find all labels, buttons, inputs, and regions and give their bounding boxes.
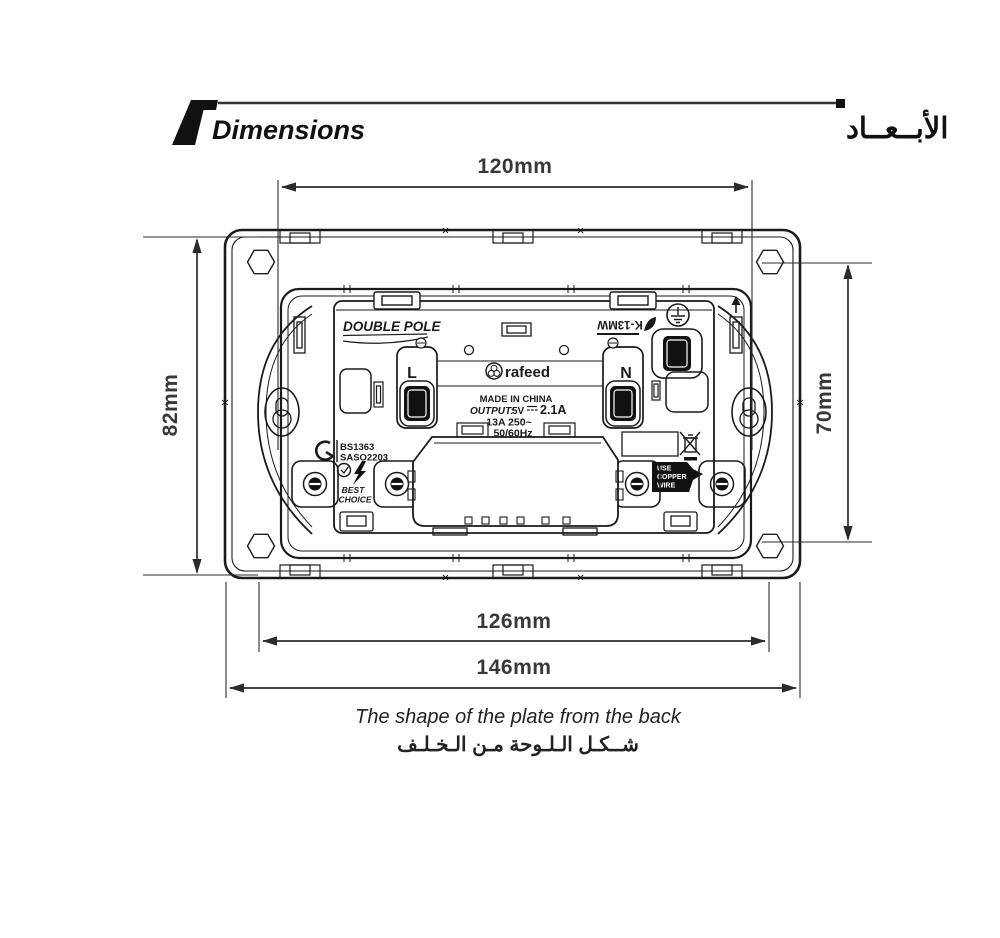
best-choice-badge: BEST CHOICE	[338, 461, 372, 505]
double-pole-text: DOUBLE POLE	[343, 319, 442, 334]
page-title-ar: الأبــعــاد	[846, 110, 948, 145]
fixing-hole-left	[465, 346, 474, 355]
caption-en: The shape of the plate from the back	[355, 706, 682, 728]
brand-logo: rafeed	[486, 363, 550, 381]
model-stamp: K-13MW	[597, 317, 656, 334]
dim-label-146mm: 146mm	[477, 656, 552, 679]
standards-block: BS1363 SASO2203	[316, 440, 388, 464]
captions: The shape of the plate from the back شــ…	[355, 706, 682, 757]
dimension-drawing: Dimensions الأبــعــاد	[0, 0, 1000, 938]
blank-label	[622, 432, 678, 456]
dim-label-126mm: 126mm	[477, 610, 552, 633]
standard-bs: BS1363	[340, 442, 374, 453]
brand-text: rafeed	[505, 364, 550, 381]
output-amps: 2.1A	[540, 403, 566, 417]
dim-label-70mm: 70mm	[813, 372, 836, 435]
live-terminal: L	[397, 338, 437, 428]
hex-boss-bottom-right	[757, 534, 784, 557]
quality-mark-icon	[316, 442, 332, 460]
hex-boss-top-right	[757, 250, 784, 273]
neutral-label: N	[620, 365, 632, 382]
hex-boss-top-left	[248, 250, 275, 273]
output-volts: 5V	[512, 406, 525, 417]
caption-ar: شــكـل الـلـوحة مـن الـخـلـف	[397, 734, 639, 757]
center-slot	[502, 323, 531, 336]
weee-bin-icon	[680, 432, 700, 461]
dim-label-120mm: 120mm	[478, 155, 553, 178]
dim-bottom-146: 146mm	[226, 582, 800, 698]
slot-left	[374, 382, 383, 407]
badge-choice: CHOICE	[338, 495, 371, 505]
up-arrow-icon	[732, 296, 741, 313]
double-pole-label: DOUBLE POLE	[343, 319, 442, 343]
mounting-keyhole-right	[732, 388, 766, 436]
ratings-block: MADE IN CHINA OUTPUT: 5V 2.1A 13A 250~ 5…	[470, 394, 566, 440]
slot-right	[652, 381, 660, 400]
dim-bottom-126: 126mm	[259, 582, 769, 652]
neutral-terminal: N	[603, 338, 643, 428]
plate-back-view: DOUBLE POLE K-13MW L	[222, 228, 803, 580]
dim-label-82mm: 82mm	[159, 374, 182, 437]
fixing-hole-right	[560, 346, 569, 355]
earth-terminal	[652, 304, 702, 378]
hex-boss-bottom-left	[248, 534, 275, 557]
lightning-icon	[353, 461, 366, 485]
badge-best: BEST	[342, 485, 365, 495]
usb-module	[408, 437, 623, 526]
certified-icon	[338, 464, 351, 477]
dimensions-page: Dimensions الأبــعــاد	[0, 0, 1000, 938]
mounting-wing-left	[258, 306, 312, 534]
page-title-en: Dimensions	[212, 115, 365, 145]
wire-note-copper: COPPER	[657, 474, 687, 481]
header-rule-endcap	[836, 99, 845, 108]
housing-left	[340, 369, 371, 413]
dim-left-82: 82mm	[143, 237, 258, 575]
header: Dimensions الأبــعــاد	[172, 99, 948, 145]
model-text: K-13MW	[597, 318, 643, 330]
dc-symbol	[527, 407, 538, 411]
output-label: OUTPUT:	[470, 406, 514, 417]
leaf-icon	[644, 317, 656, 331]
live-label: L	[407, 365, 417, 382]
dim-right-70: 70mm	[762, 263, 872, 542]
